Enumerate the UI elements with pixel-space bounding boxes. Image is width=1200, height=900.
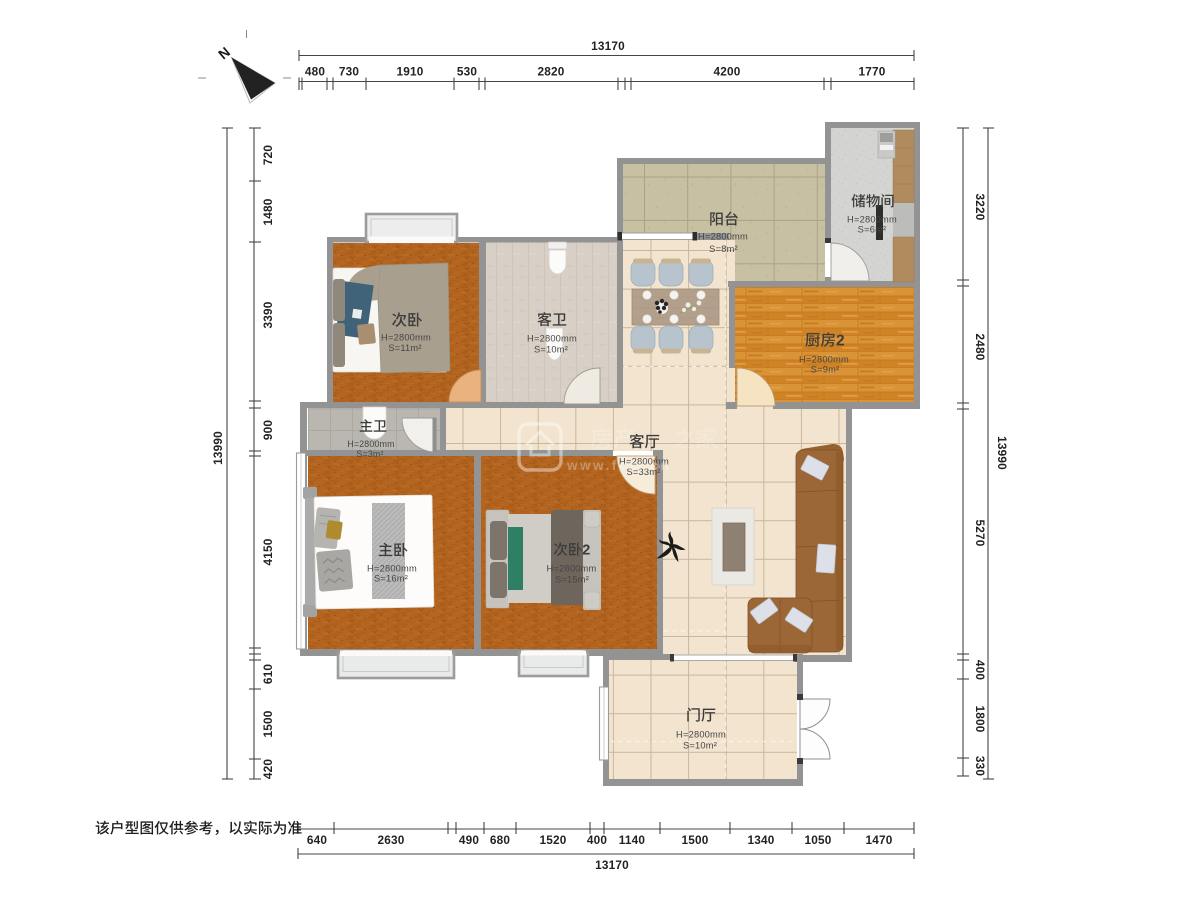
svg-text:400: 400 [973,660,987,681]
svg-text:4200: 4200 [713,65,740,79]
svg-text:1520: 1520 [539,833,566,847]
svg-text:H=2800mm: H=2800mm [547,563,597,573]
svg-text:13990: 13990 [211,431,225,465]
svg-text:640: 640 [307,833,328,847]
svg-text:3390: 3390 [261,301,275,328]
svg-text:S=16m²: S=16m² [374,573,408,583]
svg-text:530: 530 [457,65,478,79]
svg-text:1140: 1140 [619,833,646,847]
svg-text:H=2800mm: H=2800mm [698,231,748,241]
svg-text:1470: 1470 [865,833,892,847]
svg-text:2: 2 [836,333,845,350]
svg-text:S=15m²: S=15m² [555,574,589,584]
svg-text:680: 680 [490,833,511,847]
svg-text:1800: 1800 [973,705,987,732]
svg-text:www.fczj.cn: www.fczj.cn [566,458,671,473]
svg-text:S=10m²: S=10m² [534,344,568,354]
svg-text:720: 720 [261,145,275,166]
svg-text:2820: 2820 [537,65,564,79]
svg-text:13170: 13170 [595,858,629,872]
svg-text:730: 730 [339,65,360,79]
svg-text:1480: 1480 [261,198,275,225]
svg-text:S=10m²: S=10m² [683,740,717,750]
svg-text:1050: 1050 [804,833,831,847]
svg-text:S=3m²: S=3m² [356,449,383,459]
svg-text:2: 2 [582,543,590,559]
svg-text:330: 330 [973,756,987,777]
svg-text:H=2800mm: H=2800mm [799,354,849,364]
svg-text:H=2800mm: H=2800mm [847,214,897,224]
svg-text:13170: 13170 [591,39,625,53]
svg-text:S=11m²: S=11m² [388,343,421,353]
svg-text:H=2800mm: H=2800mm [381,332,431,342]
svg-text:S=9m²: S=9m² [811,364,840,374]
svg-text:S=8m²: S=8m² [709,244,738,254]
svg-text:H=2800mm: H=2800mm [367,563,417,573]
svg-text:490: 490 [459,833,480,847]
svg-text:1770: 1770 [858,65,885,79]
svg-text:H=2800mm: H=2800mm [527,333,577,343]
svg-text:1500: 1500 [681,833,708,847]
svg-text:H=2800mm: H=2800mm [347,439,394,449]
svg-text:480: 480 [305,65,326,79]
svg-text:1500: 1500 [261,710,275,737]
svg-text:S=6m²: S=6m² [858,224,887,234]
svg-text:4150: 4150 [261,538,275,565]
svg-text:420: 420 [261,759,275,780]
svg-text:900: 900 [261,420,275,441]
svg-text:1340: 1340 [747,833,774,847]
svg-text:2480: 2480 [973,333,987,360]
svg-text:H=2800mm: H=2800mm [676,729,726,739]
svg-text:2630: 2630 [377,833,404,847]
svg-text:5270: 5270 [973,519,987,546]
svg-text:610: 610 [261,664,275,685]
svg-text:13990: 13990 [995,436,1009,470]
svg-text:1910: 1910 [396,65,423,79]
svg-text:3220: 3220 [973,193,987,220]
svg-text:400: 400 [587,833,608,847]
